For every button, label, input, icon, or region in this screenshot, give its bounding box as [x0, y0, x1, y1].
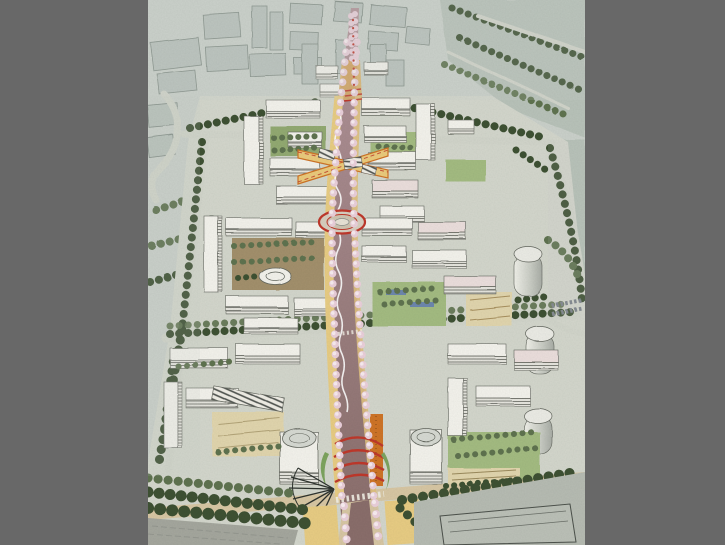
- masterplan-scene: [148, 0, 585, 545]
- rendering-image: [148, 0, 585, 545]
- paper-grain-overlay: [148, 0, 585, 545]
- viewer-background: [0, 0, 725, 545]
